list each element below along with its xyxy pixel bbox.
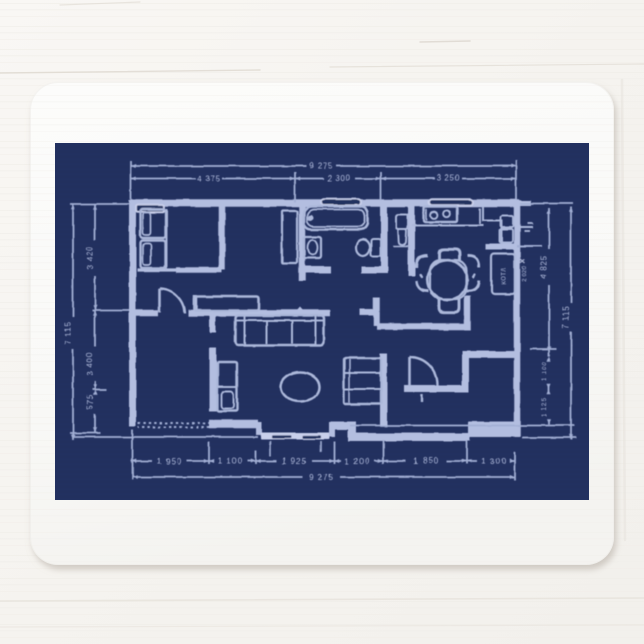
svg-text:2 300: 2 300 [327, 174, 351, 183]
svg-text:1 200: 1 200 [345, 457, 371, 466]
svg-text:1 125: 1 125 [541, 397, 548, 417]
svg-text:1 100: 1 100 [218, 457, 244, 466]
svg-text:575: 575 [86, 394, 95, 409]
svg-text:4 375: 4 375 [197, 175, 221, 184]
svg-text:1 300: 1 300 [481, 457, 507, 466]
svg-text:3 250: 3 250 [437, 174, 461, 183]
svg-text:7 115: 7 115 [562, 306, 571, 329]
svg-text:3 420: 3 420 [86, 246, 95, 270]
svg-text:9 275: 9 275 [310, 473, 334, 482]
svg-text:2 020: 2 020 [522, 266, 528, 282]
svg-text:7 115: 7 115 [64, 322, 73, 345]
svg-text:1 925: 1 925 [282, 457, 308, 466]
svg-text:9 275: 9 275 [309, 162, 333, 171]
svg-text:1 850: 1 850 [414, 457, 440, 466]
svg-text:3 400: 3 400 [86, 352, 95, 376]
svg-text:1 950: 1 950 [157, 457, 183, 466]
svg-text:КОТЛ: КОТЛ [502, 267, 508, 284]
svg-text:1 100: 1 100 [541, 361, 548, 381]
svg-text:4 825: 4 825 [540, 255, 549, 279]
